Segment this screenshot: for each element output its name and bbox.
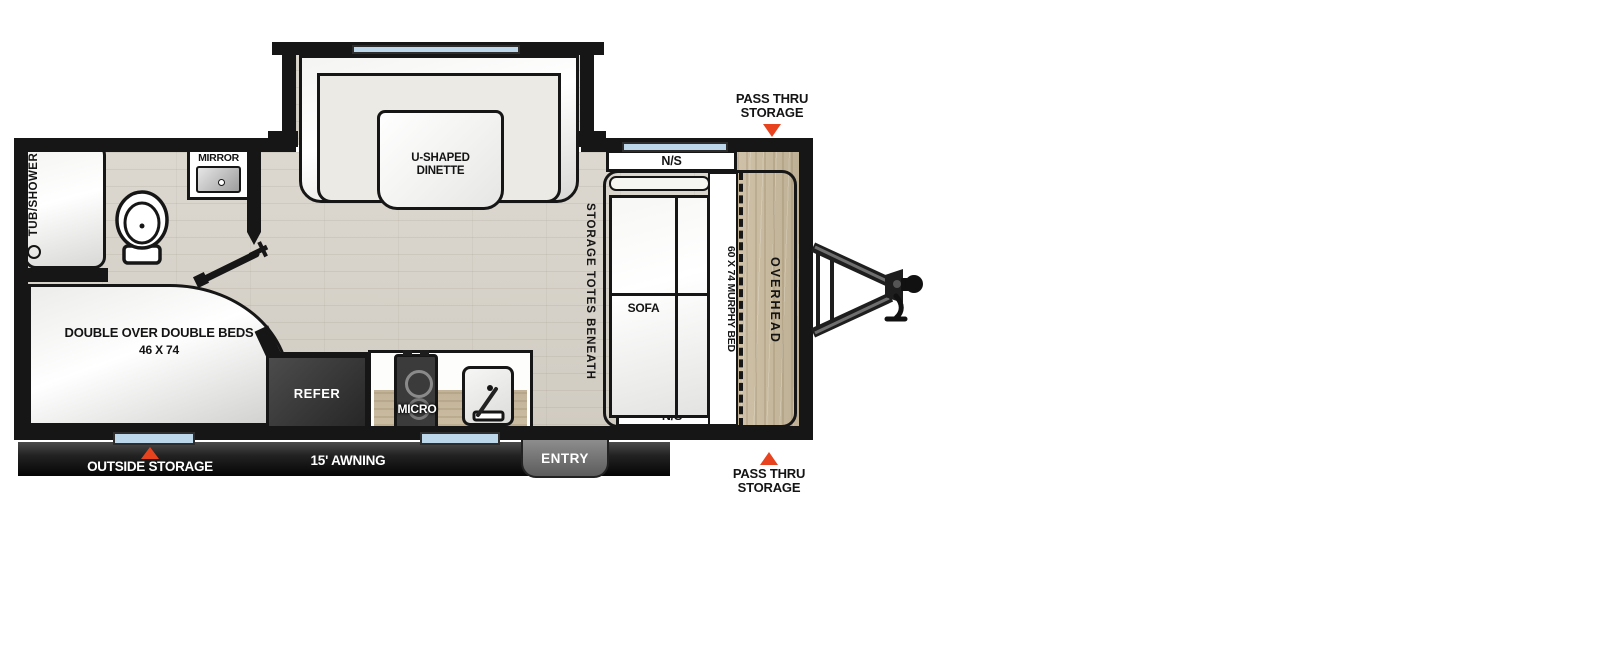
outside-storage-arrow-up-icon — [141, 447, 159, 459]
slideout-wall-right — [580, 42, 594, 145]
window-bottom-center — [420, 432, 500, 445]
murphy-label: 60 X 74 MURPHY BED — [725, 246, 737, 352]
window-bottom-left — [113, 432, 195, 445]
nightstand-top: N/S — [606, 150, 737, 172]
sofa: SOFA — [609, 195, 710, 418]
trailer-hitch — [799, 226, 935, 346]
bed-size-label: 46 X 74 — [139, 343, 179, 357]
bed-double: DOUBLE OVER DOUBLE BEDS 46 X 74 — [28, 284, 290, 426]
vanity: MIRROR — [187, 148, 250, 200]
passthru-bottom-arrow-up-icon — [760, 452, 778, 465]
slideout-wall-left — [282, 42, 296, 145]
vanity-sink — [196, 166, 241, 193]
murphy-bed-strip: 60 X 74 MURPHY BED — [708, 172, 738, 426]
outside-storage-label: OUTSIDE STORAGE — [70, 459, 230, 474]
storage-totes-label: STORAGE TOTES BENEATH — [569, 185, 595, 397]
tub-label: TUB/SHOWER — [28, 153, 40, 237]
slideout-window — [352, 45, 520, 54]
bathroom-door — [183, 232, 279, 296]
wall-bathroom — [247, 152, 261, 232]
sofa-label: SOFA — [612, 300, 675, 316]
nightstand-top-label: N/S — [661, 154, 681, 168]
toilet — [108, 190, 178, 268]
window-top-right — [622, 142, 728, 152]
tub-label-wrap: TUB/SHOWER — [27, 146, 103, 266]
cooktop — [394, 354, 438, 436]
passthru-top-arrow-down-icon — [763, 124, 781, 137]
wall-left — [14, 138, 28, 440]
awning-label: 15' AWNING — [288, 452, 408, 468]
bed-label: DOUBLE OVER DOUBLE BEDS — [65, 325, 254, 340]
sofa-divider-horizontal — [612, 293, 707, 296]
floorplan-scene: OVERHEAD U-SHAPED DINETTE TUB/SHOWER MIR… — [0, 0, 1600, 653]
wall-top-left — [14, 138, 296, 152]
refer: REFER — [266, 352, 368, 432]
kitchen-sink — [462, 366, 514, 426]
dinette-label: U-SHAPED DINETTE — [402, 152, 480, 178]
sofa-divider-vertical — [675, 198, 678, 415]
wall-bath-divider — [14, 268, 108, 282]
murphy-dashed-line — [739, 172, 743, 426]
drain-icon — [27, 245, 41, 259]
refer-label: REFER — [294, 386, 341, 401]
tub-shower: TUB/SHOWER — [24, 143, 106, 269]
dinette-table: U-SHAPED DINETTE — [377, 110, 504, 210]
passthru-bottom-label: PASS THRU STORAGE — [709, 467, 829, 494]
entry-label: ENTRY — [541, 451, 589, 466]
entry-tab: ENTRY — [521, 440, 609, 478]
micro-label: MICRO — [390, 401, 444, 416]
passthru-top-label: PASS THRU STORAGE — [712, 92, 832, 119]
murphy-headboard — [609, 176, 710, 191]
mirror-label: MIRROR — [190, 151, 247, 165]
